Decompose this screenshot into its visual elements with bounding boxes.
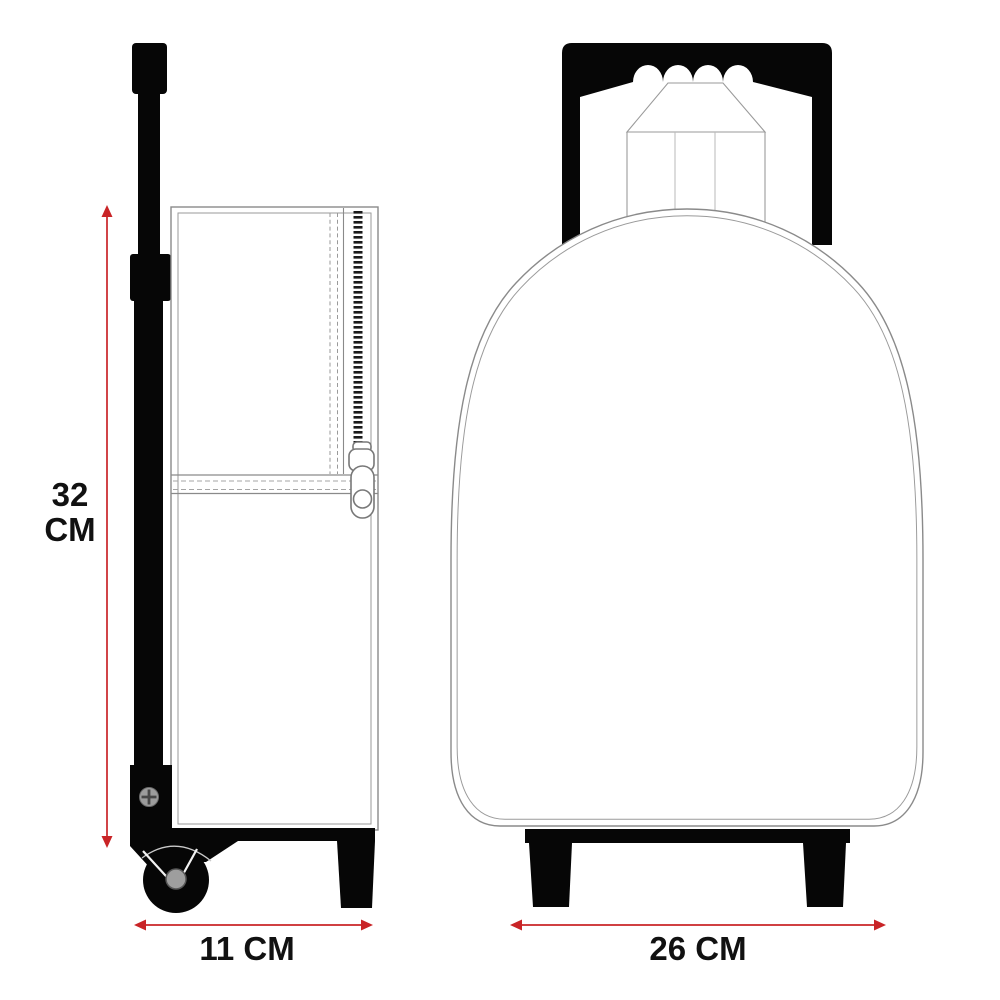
side-base-bar: [172, 828, 375, 841]
height-value: 32: [38, 477, 102, 512]
handle-collar: [130, 254, 171, 301]
handle-grip: [132, 43, 167, 94]
bracket-screw: [140, 788, 159, 807]
height-unit: CM: [38, 512, 102, 547]
front-bag-body: [451, 209, 923, 826]
side-bag-panel: [171, 207, 378, 830]
depth-dimension-label: 11 CM: [167, 931, 327, 966]
front-base-assembly: [525, 829, 850, 907]
handle-upper-pole: [138, 90, 160, 265]
side-rear-foot: [337, 841, 375, 908]
handle-lower-pole: [134, 298, 163, 773]
zipper-pull: [349, 442, 374, 518]
diagram-drawing: [0, 0, 1000, 1000]
width-arrow-left: [510, 920, 522, 931]
side-telescopic-handle: [130, 43, 171, 773]
height-arrow-up: [102, 205, 113, 217]
width-dimension-label: 26 CM: [618, 931, 778, 966]
depth-arrow-left: [134, 920, 146, 931]
width-arrow-right: [874, 920, 886, 931]
side-panel-outline: [171, 207, 378, 830]
front-base-bar: [525, 829, 850, 843]
height-arrow-down: [102, 836, 113, 848]
side-view: [130, 43, 378, 913]
front-view: [451, 43, 923, 907]
front-right-leg: [803, 843, 846, 907]
zipper-pull-hole: [354, 490, 372, 508]
trolley-backpack-dimension-diagram: 32 CM 11 CM 26 CM: [0, 0, 1000, 1000]
depth-arrow-right: [361, 920, 373, 931]
front-left-leg: [529, 843, 572, 907]
housing-trapezoid: [627, 83, 765, 132]
front-bag-outline: [451, 209, 923, 826]
wheel-hub: [166, 869, 186, 889]
height-dimension-label: 32 CM: [38, 477, 102, 547]
